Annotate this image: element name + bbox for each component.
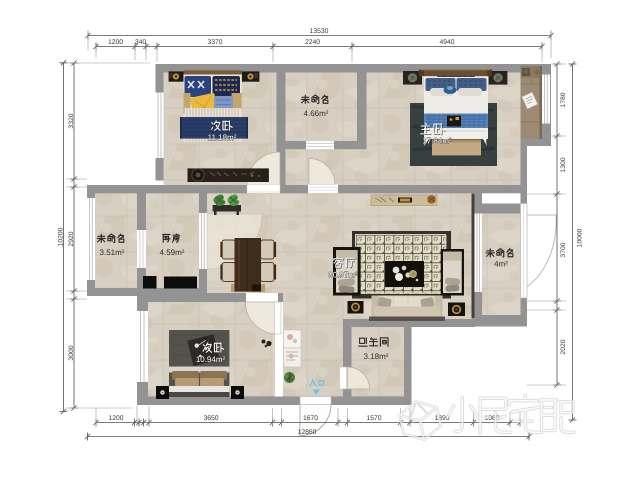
svg-text:4.59m²: 4.59m² — [160, 248, 185, 257]
svg-text:3320: 3320 — [68, 113, 75, 128]
svg-text:3370: 3370 — [207, 39, 222, 46]
svg-text:1300: 1300 — [560, 157, 567, 172]
svg-text:13530: 13530 — [310, 28, 329, 35]
svg-text:10200: 10200 — [58, 227, 65, 246]
svg-text:2020: 2020 — [560, 339, 567, 354]
svg-text:1200: 1200 — [108, 415, 123, 422]
svg-text:3650: 3650 — [203, 415, 218, 422]
svg-text:1570: 1570 — [366, 415, 381, 422]
svg-text:4m²: 4m² — [494, 259, 508, 268]
svg-text:12860: 12860 — [298, 429, 317, 436]
svg-text:3.51m²: 3.51m² — [100, 248, 125, 257]
svg-text:1200: 1200 — [108, 39, 123, 46]
svg-text:30.97m²: 30.97m² — [328, 270, 358, 279]
svg-text:3.18m²: 3.18m² — [364, 352, 389, 361]
svg-text:1670: 1670 — [303, 415, 318, 422]
svg-text:340: 340 — [135, 39, 147, 46]
svg-text:4940: 4940 — [439, 39, 454, 46]
svg-text:11.18m²: 11.18m² — [208, 133, 237, 142]
svg-text:1780: 1780 — [560, 92, 567, 107]
svg-text:10000: 10000 — [577, 228, 584, 247]
svg-text:4.66m²: 4.66m² — [304, 109, 329, 118]
svg-text:17.84m²: 17.84m² — [422, 136, 452, 145]
svg-text:2240: 2240 — [305, 39, 320, 46]
svg-text:2920: 2920 — [68, 231, 75, 246]
svg-text:10.94m²: 10.94m² — [196, 355, 226, 364]
svg-text:3000: 3000 — [68, 345, 75, 360]
svg-text:3700: 3700 — [560, 242, 567, 257]
